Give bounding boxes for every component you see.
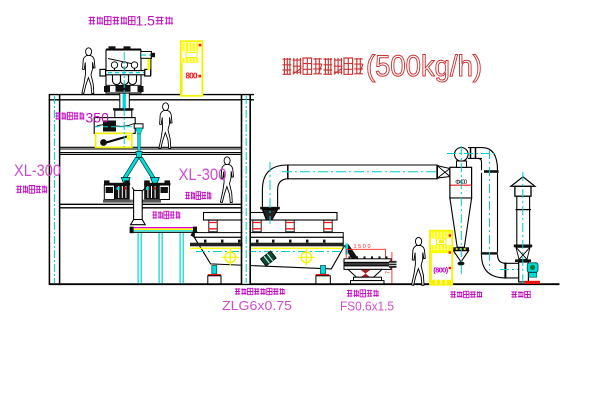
svg-text:ZLG6x0.75: ZLG6x0.75 (222, 298, 292, 313)
svg-text:1500: 1500 (354, 244, 371, 250)
svg-text:XL-300: XL-300 (179, 165, 227, 184)
svg-text:(500kg/h): (500kg/h) (366, 50, 482, 83)
svg-text:FS0.6x1.5: FS0.6x1.5 (340, 299, 394, 314)
svg-text:800: 800 (186, 72, 199, 81)
svg-text:1.5: 1.5 (136, 13, 156, 29)
svg-text:(800): (800) (433, 265, 449, 274)
svg-text:XL-300: XL-300 (14, 161, 61, 180)
svg-text:350: 350 (86, 110, 110, 126)
